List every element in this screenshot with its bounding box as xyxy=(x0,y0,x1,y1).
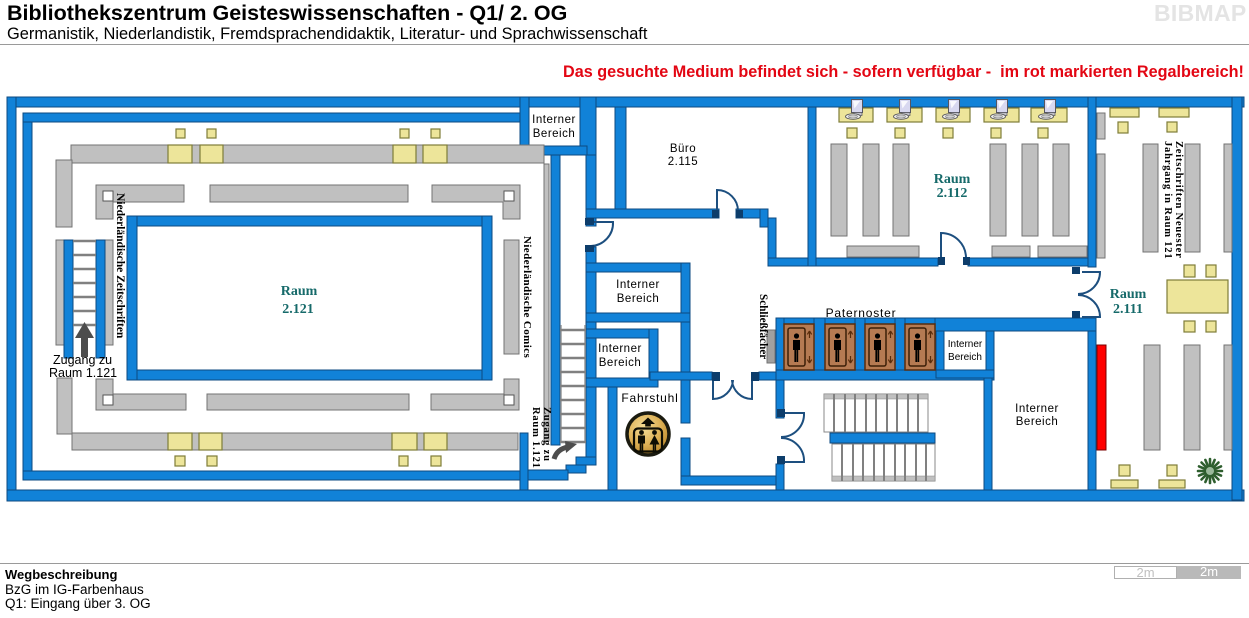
svg-text:Bereich: Bereich xyxy=(599,357,642,369)
svg-text:Bereich: Bereich xyxy=(948,352,982,363)
svg-text:Zeitschriften Neuester: Zeitschriften Neuester xyxy=(1173,141,1184,259)
svg-text:Bereich: Bereich xyxy=(617,293,660,305)
svg-text:2.111: 2.111 xyxy=(1113,302,1143,317)
svg-text:Raum: Raum xyxy=(1110,287,1147,302)
svg-text:Fahrstuhl: Fahrstuhl xyxy=(621,391,678,405)
svg-text:Paternoster: Paternoster xyxy=(826,306,897,320)
svg-text:Interner: Interner xyxy=(616,279,660,291)
svg-text:Bereich: Bereich xyxy=(1016,416,1059,428)
svg-text:Niederländische Zeitschriften: Niederländische Zeitschriften xyxy=(114,193,126,339)
svg-text:2.115: 2.115 xyxy=(668,156,698,168)
svg-text:Interner: Interner xyxy=(1015,403,1059,415)
svg-text:Interner: Interner xyxy=(598,343,642,355)
svg-text:Schließfächer: Schließfächer xyxy=(757,294,769,359)
svg-text:Niederländische Comics: Niederländische Comics xyxy=(521,236,533,358)
svg-text:2.112: 2.112 xyxy=(937,186,968,201)
svg-text:Zugang zu: Zugang zu xyxy=(541,407,552,462)
svg-text:Jahrgang in Raum 121: Jahrgang in Raum 121 xyxy=(1162,141,1173,259)
svg-text:Büro: Büro xyxy=(670,143,696,155)
svg-text:Interner: Interner xyxy=(532,114,576,126)
svg-text:Interner: Interner xyxy=(948,339,983,350)
svg-text:2.121: 2.121 xyxy=(282,302,314,317)
svg-text:Bereich: Bereich xyxy=(533,128,576,140)
svg-text:Raum 1.121: Raum 1.121 xyxy=(530,407,541,469)
svg-text:Raum 1.121: Raum 1.121 xyxy=(49,366,117,380)
svg-text:Zugang zu: Zugang zu xyxy=(53,353,112,367)
svg-text:Raum: Raum xyxy=(281,284,318,299)
svg-text:Raum: Raum xyxy=(934,172,971,187)
